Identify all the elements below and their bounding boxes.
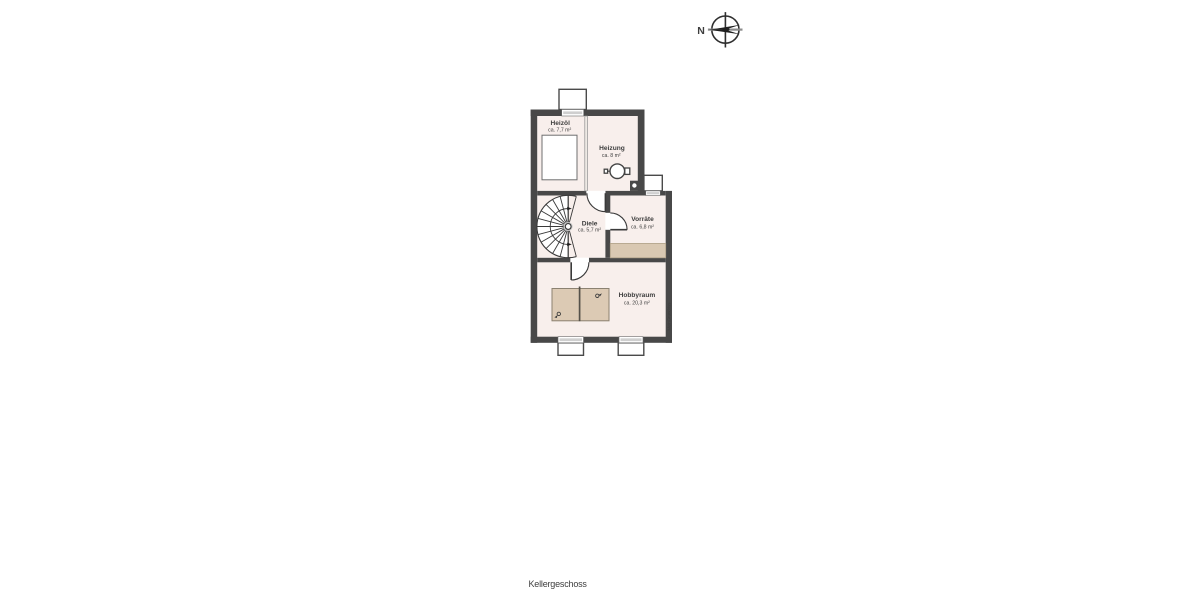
- svg-text:ca. 8 m²: ca. 8 m²: [602, 153, 621, 159]
- svg-text:N: N: [697, 25, 705, 37]
- svg-text:ca. 20,3 m²: ca. 20,3 m²: [624, 301, 650, 307]
- svg-text:Heizung: Heizung: [599, 145, 625, 152]
- svg-text:Vorräte: Vorräte: [631, 216, 654, 223]
- svg-text:Diele: Diele: [582, 220, 598, 227]
- svg-text:Heizöl: Heizöl: [550, 120, 570, 127]
- svg-text:Hobbyraum: Hobbyraum: [619, 292, 656, 299]
- svg-text:ca. 6,8 m²: ca. 6,8 m²: [631, 225, 654, 231]
- svg-text:ca. 5,7 m²: ca. 5,7 m²: [578, 228, 601, 234]
- svg-text:MeinGrundriss: MeinGrundriss: [666, 303, 671, 331]
- svg-text:Kellergeschoss: Kellergeschoss: [529, 579, 588, 589]
- svg-text:ca. 7,7 m²: ca. 7,7 m²: [548, 128, 571, 134]
